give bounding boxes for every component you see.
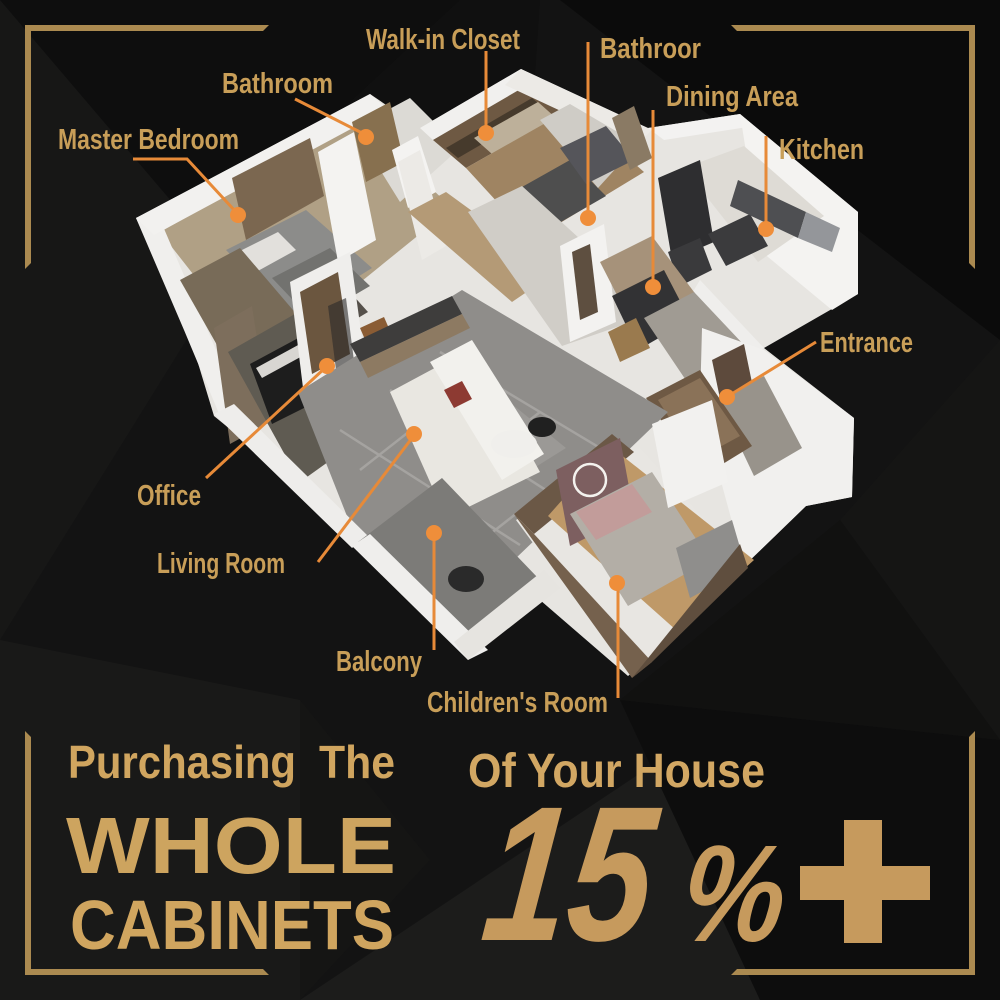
svg-text:Entrance: Entrance	[820, 327, 913, 359]
svg-text:Master Bedroom: Master Bedroom	[58, 124, 239, 156]
svg-text:Walk-in Closet: Walk-in Closet	[366, 24, 520, 56]
svg-text:The: The	[319, 736, 395, 788]
svg-text:Office: Office	[137, 480, 201, 512]
svg-text:CABINETS: CABINETS	[70, 886, 394, 964]
svg-text:Bathroom: Bathroom	[222, 68, 333, 100]
svg-text:Children's Room: Children's Room	[427, 687, 608, 719]
svg-text:%: %	[675, 817, 794, 971]
svg-text:Dining Area: Dining Area	[666, 81, 799, 113]
svg-text:Balcony: Balcony	[336, 646, 422, 678]
svg-text:15: 15	[475, 766, 668, 980]
svg-text:Living Room: Living Room	[157, 548, 285, 580]
svg-text:Bathroor: Bathroor	[600, 33, 701, 65]
svg-text:Kitchen: Kitchen	[779, 134, 864, 166]
svg-text:WHOLE: WHOLE	[66, 801, 396, 890]
svg-text:Purchasing: Purchasing	[68, 736, 296, 788]
